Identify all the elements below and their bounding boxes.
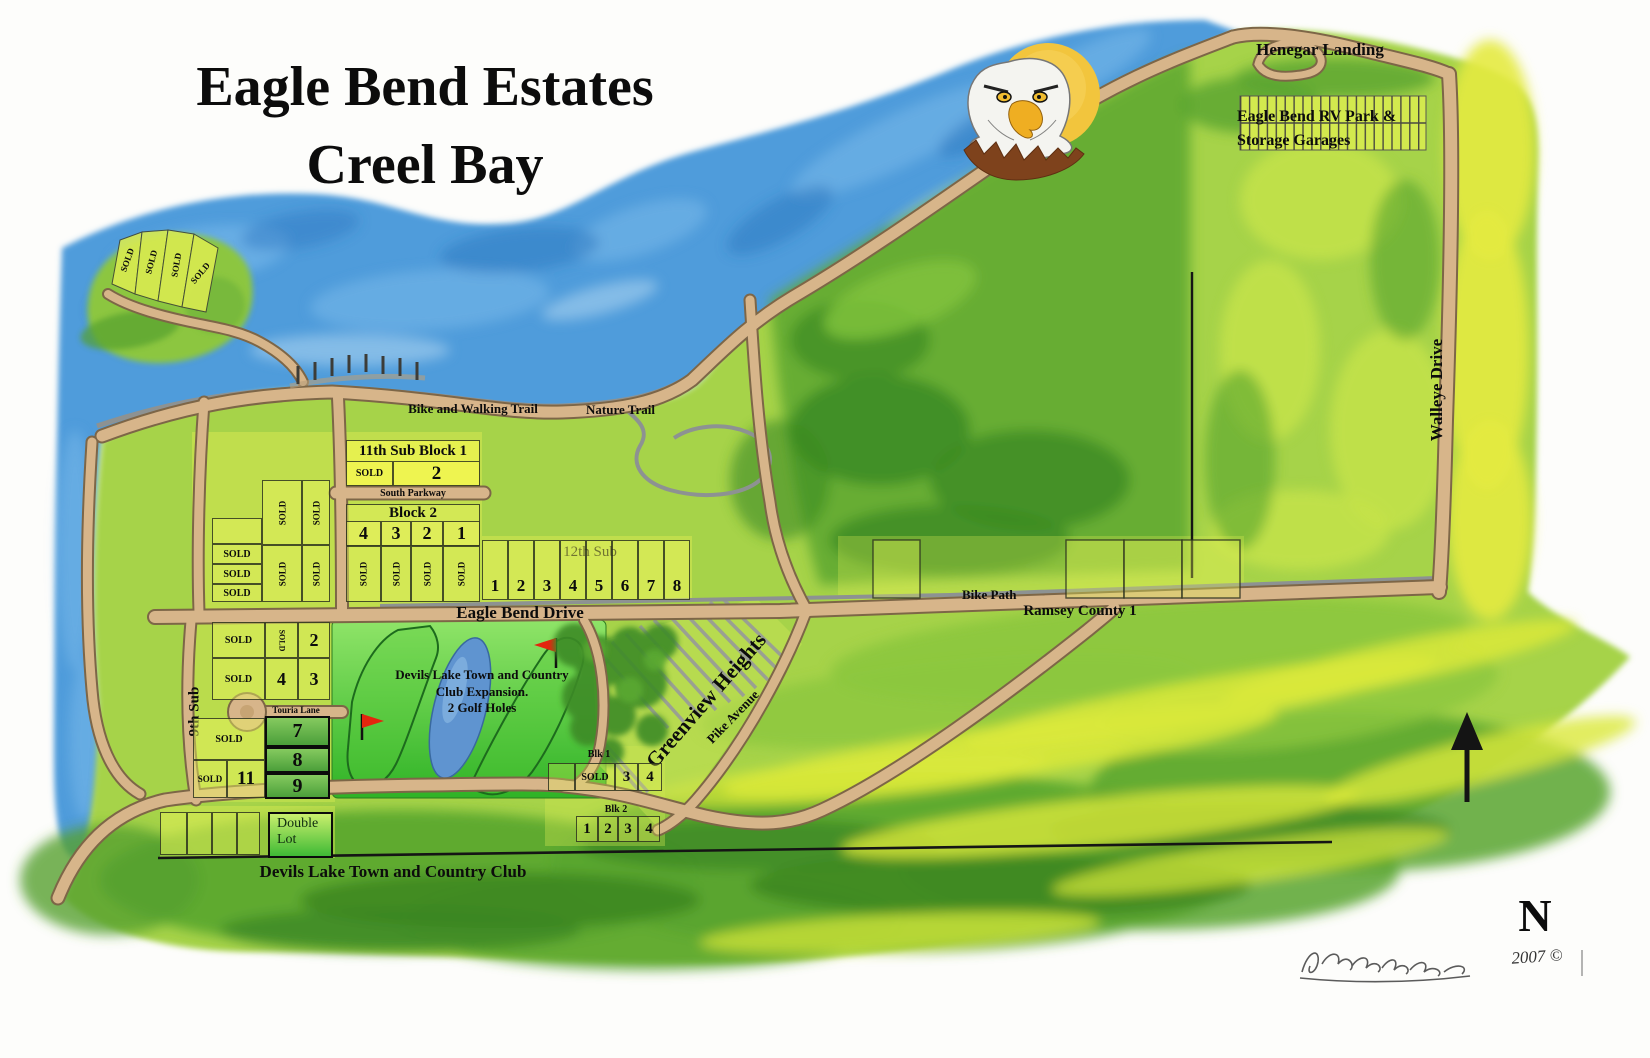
blk1-lot-3: 3 (615, 763, 638, 791)
sub12-lot-8: 8 (664, 540, 690, 600)
south-parkway-label: South Parkway (346, 487, 480, 500)
south-block-sold: SOLD (193, 718, 265, 760)
block2-sold-lot: SOLD (443, 546, 480, 602)
double-lot-label: Double Lot (268, 812, 333, 858)
sub12-lot-7: 7 (638, 540, 664, 600)
golf-expansion-text: Devils Lake Town and Country Club Expans… (362, 664, 602, 720)
bike-path-label: Bike Path (962, 587, 1042, 603)
blk1-empty-lot (548, 763, 575, 791)
bottom-left-lot (187, 812, 212, 855)
block2-sold-lot: SOLD (411, 546, 443, 602)
map-title-line2: Creel Bay (105, 128, 745, 202)
rv-park-label-line1: Eagle Bend RV Park & (1237, 107, 1437, 127)
greenview-heights-label: Greenview Heights (606, 688, 806, 712)
bottom-left-lot (160, 812, 187, 855)
block2-lot-1: 1 (443, 521, 480, 546)
walleye-drive-label: Walleye Drive (1407, 310, 1467, 470)
mid-block-lot-4: 4 (265, 658, 298, 700)
south-block-lot-9: 9 (265, 773, 330, 799)
sub11-lot-2: 2 (393, 461, 480, 486)
sub12-lot-1: 1 (482, 540, 508, 600)
blk1-lot-sold: SOLD (575, 763, 615, 791)
west-block-sold: SOLD (212, 564, 262, 584)
sub12-lot-4: 4 (560, 540, 586, 600)
mid-block-lot-3: 3 (298, 658, 330, 700)
blk2-lot-4: 4 (638, 816, 660, 842)
west-block-vsold: SOLD (262, 545, 302, 602)
block2-lot-3: 3 (381, 521, 411, 546)
block2-sold-lot: SOLD (346, 546, 381, 602)
west-block-sold: SOLD (212, 584, 262, 602)
blk1-title: Blk 1 (580, 748, 618, 761)
block2-lot-4: 4 (346, 521, 381, 546)
bottom-left-lot (212, 812, 237, 855)
south-block-lot-7: 7 (265, 716, 330, 747)
sub11-lot-sold: SOLD (346, 461, 393, 486)
mid-block-lot-2: 2 (298, 622, 330, 658)
eagle-bend-drive-label: Eagle Bend Drive (430, 602, 610, 623)
nature-trail-label: Nature Trail (586, 402, 676, 418)
ramsey-county-label: Ramsey County 1 (995, 602, 1165, 621)
sub11-title: 11th Sub Block 1 (346, 441, 480, 461)
plat-map: Eagle Bend Estates Creel Bay Henegar Lan… (0, 0, 1650, 1058)
map-title-line1: Eagle Bend Estates (105, 50, 745, 124)
sub12-lot-6: 6 (612, 540, 638, 600)
mid-block-sold: SOLD (212, 658, 265, 700)
bottom-left-lot (237, 812, 260, 855)
rv-park-label-line2: Storage Garages (1237, 131, 1437, 151)
blk2-lot-1: 1 (576, 816, 598, 842)
west-block-vsold: SOLD (262, 480, 302, 545)
sub12-lot-3: 3 (534, 540, 560, 600)
south-block-lot-11: 11 (227, 760, 265, 798)
blk1-lot-4: 4 (638, 763, 662, 791)
west-block-empty-lot (212, 518, 262, 544)
block2-title: Block 2 (346, 505, 480, 521)
sub12-lot-2: 2 (508, 540, 534, 600)
mid-block-vsold: SOLD (265, 622, 298, 658)
blk2-lot-3: 3 (618, 816, 638, 842)
country-club-label: Devils Lake Town and Country Club (228, 860, 558, 884)
south-block-sold2: SOLD (193, 760, 227, 798)
sub12-lot-5: 5 (586, 540, 612, 600)
touria-lane-label: Touria Lane (265, 704, 327, 716)
mid-block-sold: SOLD (212, 622, 265, 658)
south-block-lot-8: 8 (265, 747, 330, 773)
north-letter: N (1505, 886, 1565, 944)
blk2-lot-2: 2 (598, 816, 618, 842)
west-block-sold: SOLD (212, 544, 262, 564)
west-block-vsold: SOLD (302, 545, 330, 602)
block2-lot-2: 2 (411, 521, 443, 546)
bike-walking-trail-label: Bike and Walking Trail (378, 400, 568, 418)
blk2-title: Blk 2 (596, 803, 636, 816)
west-block-vsold: SOLD (302, 480, 330, 545)
peninsula-lot-sold: SOLD (180, 266, 220, 280)
block2-sold-lot: SOLD (381, 546, 411, 602)
henegar-landing-label: Henegar Landing (1240, 38, 1400, 62)
